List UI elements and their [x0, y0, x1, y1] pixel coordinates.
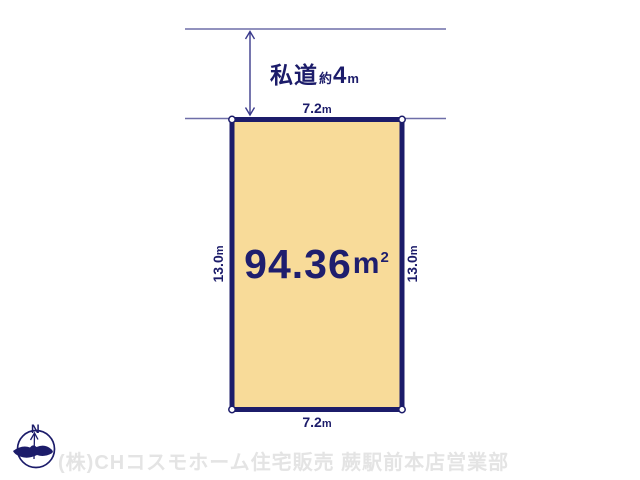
site-plan-canvas: N 私道 約 4 m 7.2m 7.2m 13.0m 13.0m 94.36m2… [0, 0, 640, 480]
dimension-unit: m [322, 418, 332, 430]
area-exponent: 2 [380, 249, 389, 266]
compass-bird-shape [13, 445, 53, 457]
compass-north-label: N [31, 422, 40, 436]
plot-area-label: 94.36m2 [232, 119, 402, 409]
dimension-value: 7.2 [302, 100, 321, 116]
road-name-text: 私道 [270, 56, 318, 90]
compass-icon: N [13, 422, 55, 468]
dimension-value: 13.0 [210, 255, 226, 282]
dimension-unit: m [322, 104, 332, 116]
dimension-unit: m [408, 245, 420, 255]
dimension-unit: m [214, 245, 226, 255]
dimension-depth-right: 13.0m [404, 242, 420, 286]
dimension-value: 13.0 [404, 255, 420, 282]
area-unit: m2 [353, 247, 390, 281]
road-width-value: 4 [333, 62, 346, 90]
company-watermark: (株)CHコスモホーム住宅販売 蕨駅前本店営業部 [58, 446, 509, 475]
dimension-depth-left: 13.0m [210, 242, 226, 286]
road-approx-text: 約 [319, 68, 332, 87]
private-road-label: 私道 約 4 m [270, 56, 360, 90]
dimension-width-top: 7.2m [232, 100, 402, 116]
road-width-unit: m [347, 71, 359, 86]
area-value: 94.36 [244, 241, 352, 288]
dimension-value: 7.2 [302, 414, 321, 430]
dimension-width-bottom: 7.2m [232, 414, 402, 430]
